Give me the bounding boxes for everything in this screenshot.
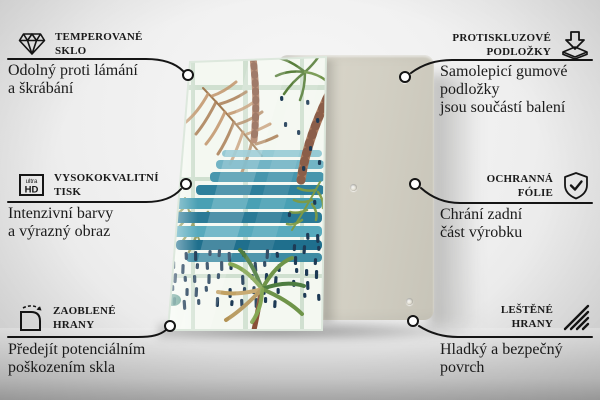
feature-rounded-edges: ZAOBLENÉ HRANY xyxy=(16,303,168,332)
shield-check-icon xyxy=(562,171,590,200)
feature-title: PROTISKLUZOVÉ PODLOŽKY xyxy=(452,31,551,59)
feature-title: OCHRANNÁ FÓLIE xyxy=(487,172,553,200)
feature-title: LEŠTĚNÉ HRANY xyxy=(501,303,553,331)
polished-edges-icon xyxy=(562,303,590,331)
feature-tempered-glass: TEMPEROVANÉ SKLO xyxy=(18,30,170,58)
feature-desc: Samolepicí gumové podložky jsou součástí… xyxy=(440,63,592,117)
feature-desc: Hladký a bezpečný povrch xyxy=(440,341,592,377)
feature-desc: Chrání zadní část výrobku xyxy=(440,206,592,242)
feature-hq-print: ultra HD VYSOKOKVALITNÍ TISK xyxy=(18,171,170,199)
ultra-hd-icon: ultra HD xyxy=(18,172,45,198)
feature-protective-film: OCHRANNÁ FÓLIE xyxy=(438,171,590,200)
feature-desc: Intenzivní barvy a výrazný obraz xyxy=(8,205,160,241)
product-infographic: TEMPEROVANÉ SKLO Odolný proti lámání a š… xyxy=(0,0,600,400)
feature-title: ZAOBLENÉ HRANY xyxy=(53,304,116,332)
anti-slip-pads-icon xyxy=(560,30,590,59)
feature-antislip-pads: PROTISKLUZOVÉ PODLOŽKY xyxy=(438,30,590,59)
feature-polished-edges: LEŠTĚNÉ HRANY xyxy=(438,303,590,331)
rounded-corner-icon xyxy=(16,303,44,332)
diamond-icon xyxy=(18,32,46,56)
callout-connectors xyxy=(0,0,600,400)
feature-desc: Předejít potenciálním poškozením skla xyxy=(8,341,160,377)
svg-text:HD: HD xyxy=(25,185,39,196)
feature-title: TEMPEROVANÉ SKLO xyxy=(55,30,143,58)
feature-desc: Odolný proti lámání a škrábání xyxy=(8,62,160,98)
feature-title: VYSOKOKVALITNÍ TISK xyxy=(54,171,159,199)
